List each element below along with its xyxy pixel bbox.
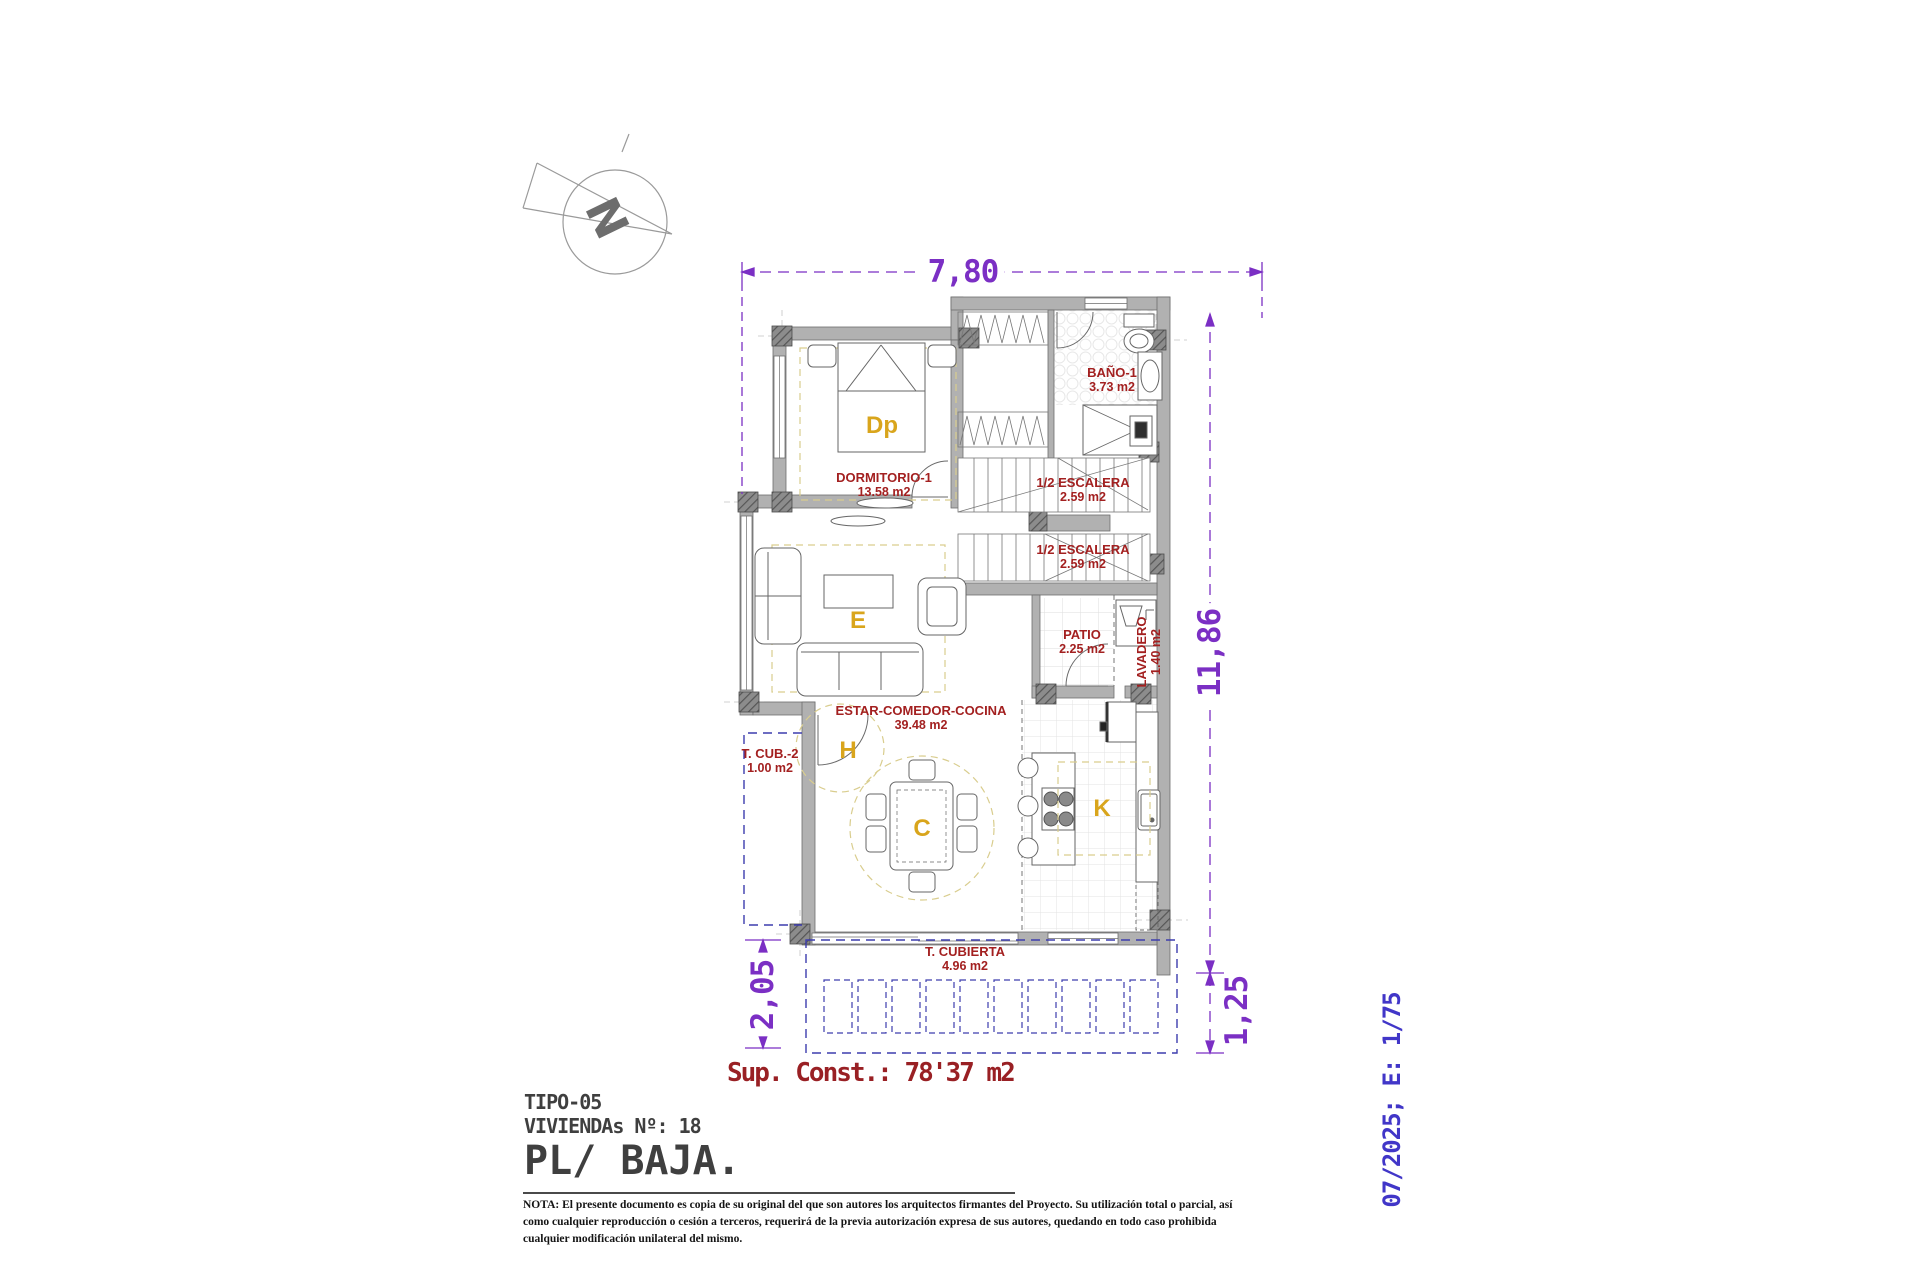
chair bbox=[866, 826, 886, 852]
room-name: T. CUB.-2 bbox=[741, 746, 798, 761]
room-label-bano: BAÑO-1 3.73 m2 bbox=[1087, 365, 1137, 395]
dimension-right-terrace: 1,25 bbox=[1219, 970, 1255, 1053]
room-name: BAÑO-1 bbox=[1087, 365, 1137, 380]
dimension-left-terrace: 2,05 bbox=[745, 954, 781, 1037]
room-label-tcubierta: T. CUBIERTA 4.96 m2 bbox=[925, 944, 1005, 974]
room-name: DORMITORIO-1 bbox=[836, 470, 932, 485]
room-name: 1/2 ESCALERA bbox=[1036, 542, 1129, 557]
dimension-right-height: 11,86 bbox=[1192, 603, 1228, 703]
room-area: 13.58 m2 bbox=[836, 485, 932, 500]
room-area: 2.25 m2 bbox=[1059, 642, 1105, 657]
room-name: PATIO bbox=[1059, 627, 1105, 642]
stool bbox=[1018, 796, 1038, 816]
nota-line-1: NOTA: El presente documento es copia de … bbox=[523, 1199, 1232, 1211]
plan-drawing bbox=[0, 0, 1920, 1280]
stool bbox=[1018, 758, 1038, 778]
room-area: 39.48 m2 bbox=[836, 718, 1007, 733]
closets bbox=[958, 312, 1048, 447]
room-label-dormitorio: DORMITORIO-1 13.58 m2 bbox=[836, 470, 932, 500]
letter-hall: H bbox=[839, 737, 856, 765]
chair bbox=[957, 794, 977, 820]
title-viviendas: VIVIENDAs Nº: 18 bbox=[524, 1114, 701, 1138]
washbasin bbox=[1141, 360, 1159, 392]
room-area: 2.59 m2 bbox=[1036, 557, 1129, 572]
room-name: LAVADERO bbox=[1135, 616, 1149, 687]
title-planta: PL/ BAJA. bbox=[524, 1138, 741, 1184]
nota-line-2: como cualquier reproducción o cesión a t… bbox=[523, 1216, 1217, 1228]
nightstand bbox=[928, 345, 956, 367]
built-area-summary: Sup. Const.: 78'37 m2 bbox=[727, 1058, 1014, 1088]
room-label-patio: PATIO 2.25 m2 bbox=[1059, 627, 1105, 657]
letter-estar: E bbox=[850, 607, 866, 635]
nota-line-3: cualquier modificación unilateral del mi… bbox=[523, 1233, 742, 1245]
room-area: 2.59 m2 bbox=[1036, 490, 1129, 505]
room-name: T. CUBIERTA bbox=[925, 944, 1005, 959]
room-name: ESTAR-COMEDOR-COCINA bbox=[836, 703, 1007, 718]
room-name: 1/2 ESCALERA bbox=[1036, 475, 1129, 490]
title-rule bbox=[523, 1192, 1015, 1194]
coffee-table bbox=[824, 575, 893, 608]
dimension-top-width: 7,80 bbox=[922, 254, 1005, 290]
date-scale-note: 07/2025; E: 1/75 bbox=[1378, 992, 1406, 1207]
chair bbox=[909, 760, 935, 780]
chair bbox=[957, 826, 977, 852]
room-label-escalera-superior: 1/2 ESCALERA 2.59 m2 bbox=[1036, 475, 1129, 505]
room-area: 4.96 m2 bbox=[925, 959, 1005, 974]
room-area: 1.00 m2 bbox=[741, 761, 798, 776]
letter-comedor: C bbox=[913, 815, 930, 843]
chair bbox=[909, 872, 935, 892]
room-label-escalera-inferior: 1/2 ESCALERA 2.59 m2 bbox=[1036, 542, 1129, 572]
room-area: 1.40 m2 bbox=[1149, 616, 1163, 687]
title-tipo: TIPO-05 bbox=[524, 1090, 601, 1114]
room-label-estar: ESTAR-COMEDOR-COCINA 39.48 m2 bbox=[836, 703, 1007, 733]
letter-dormitorio: Dp bbox=[866, 412, 898, 440]
nightstand bbox=[808, 345, 836, 367]
room-area: 3.73 m2 bbox=[1087, 380, 1137, 395]
toilet-tank bbox=[1124, 314, 1154, 327]
room-label-lavadero: LAVADERO 1.40 m2 bbox=[1135, 616, 1163, 687]
chair bbox=[866, 794, 886, 820]
room-label-tcub2: T. CUB.-2 1.00 m2 bbox=[741, 746, 798, 776]
console bbox=[831, 516, 885, 526]
floor-plan-sheet: N 7,80 11,86 2,05 1,25 DORMITORIO-1 13.5… bbox=[0, 0, 1920, 1280]
stool bbox=[1018, 838, 1038, 858]
letter-cocina: K bbox=[1093, 795, 1110, 823]
sofa-three-seat bbox=[797, 643, 923, 696]
